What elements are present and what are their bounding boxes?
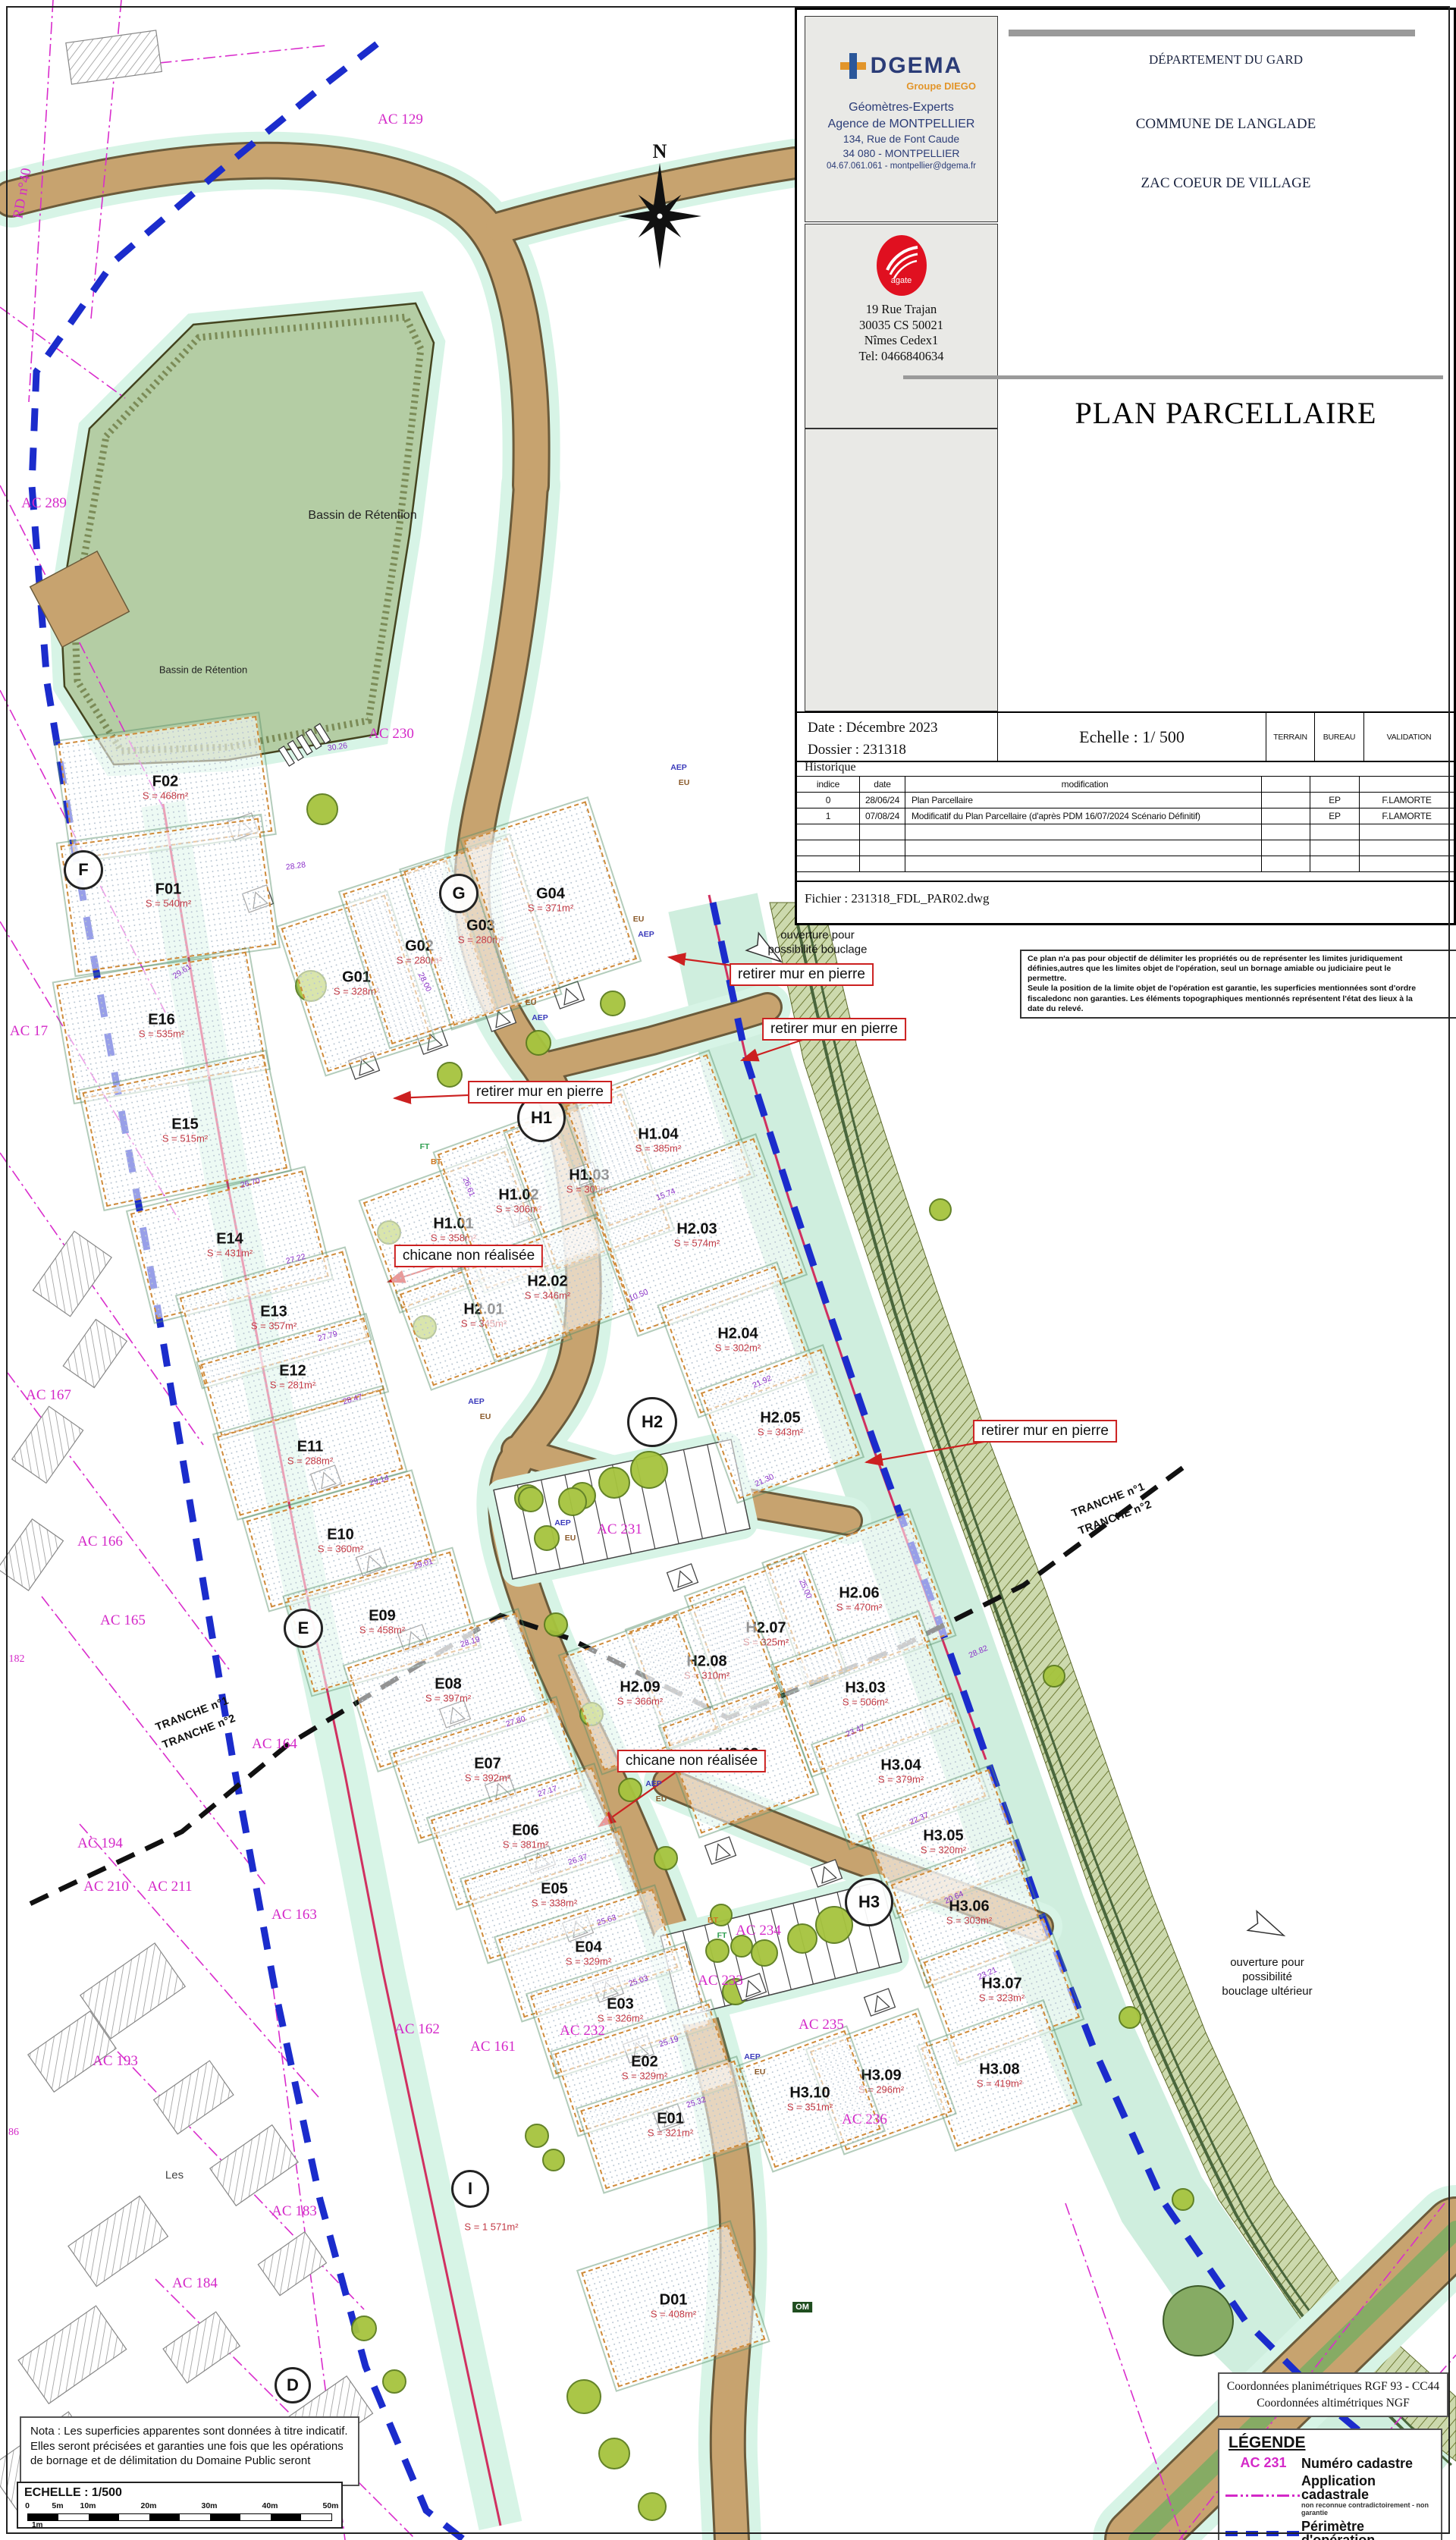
lot-E09: E09S = 458m² [359, 1608, 405, 1636]
header-modification: modification [905, 777, 1262, 792]
lot-F01: F01S = 540m² [146, 881, 191, 909]
tranche-label: TRANCHE n°1TRANCHE n°2 [1069, 1478, 1155, 1541]
lot-id: E09 [359, 1608, 405, 1625]
echelle-value: Echelle : 1/ 500 [998, 713, 1266, 761]
header-terrain-blank [1262, 777, 1310, 792]
historique-cell: F.LAMORTE [1360, 793, 1454, 808]
title-separator [903, 375, 1443, 379]
dimension-label: 30.26 [327, 741, 348, 753]
lot-G04: G04S = 371m² [528, 886, 573, 914]
utility-label: AEP [645, 1779, 662, 1788]
utility-label: EU [755, 2067, 766, 2077]
lot-H3.05: H3.05S = 320m² [921, 1828, 966, 1856]
historique-cell: Modificatif du Plan Parcellaire (d'après… [905, 808, 1262, 824]
lot-id: H3.08 [977, 2061, 1022, 2078]
lot-E04: E04S = 329m² [566, 1939, 611, 1967]
dgema-line: Géomètres-Experts [805, 99, 997, 116]
map-label: OM [792, 2302, 812, 2312]
annotation-callout: retirer mur en pierre [973, 1420, 1117, 1443]
dgema-logo-box: DGEMA Groupe DIEGO Géomètres-Experts Age… [805, 16, 998, 222]
lot-area: S = 397m² [425, 1693, 471, 1704]
lot-area: S = 506m² [843, 1697, 888, 1708]
scale-tick: 10m [80, 2501, 96, 2510]
lot-area: S = 379m² [878, 1774, 924, 1785]
scale-tick: 50m [322, 2501, 338, 2510]
historique-cell: 28/06/24 [860, 793, 905, 808]
historique-cell: EP [1310, 808, 1360, 824]
lot-area: S = 381m² [503, 1839, 548, 1851]
cadastre-label: AC 236 [842, 2111, 887, 2128]
lot-id: D01 [651, 2292, 696, 2309]
cadastre-label: AC 211 [148, 1879, 193, 1895]
lot-area: S = 468m² [143, 790, 188, 802]
lot-area: S = 385m² [635, 1143, 681, 1154]
utility-label: BT [431, 1157, 441, 1166]
col-terrain: TERRAIN [1266, 713, 1315, 761]
historique-cell: 1 [797, 808, 860, 824]
lot-area: S = 323m² [979, 1992, 1025, 2004]
node-G: G [439, 874, 479, 913]
date-row: Date : Décembre 2023 Dossier : 231318 Ec… [797, 711, 1454, 762]
utility-label: EU [526, 998, 537, 1007]
utility-label: AEP [638, 930, 654, 939]
node-H2: H2 [627, 1397, 677, 1447]
legend-cadastre-sample: AC 231 [1225, 2455, 1301, 2471]
lot-H3.03: H3.03S = 506m² [843, 1680, 888, 1708]
map-label: Bassin de Rétention [159, 664, 247, 676]
agate-logo-icon: agate [877, 235, 927, 296]
lot-H3.04: H3.04S = 379m² [878, 1757, 924, 1785]
legend-application-line-icon [1225, 2494, 1301, 2497]
historique-cell: F.LAMORTE [1360, 808, 1454, 824]
lot-E12: E12S = 281m² [270, 1363, 315, 1391]
lot-id: H2.02 [525, 1273, 570, 1290]
lot-id: E02 [622, 2054, 667, 2071]
lot-area: S = 351m² [787, 2102, 833, 2113]
lot-E05: E05S = 338m² [532, 1881, 577, 1909]
lot-id: E04 [566, 1939, 611, 1956]
lot-id: E07 [465, 1756, 510, 1772]
lot-area: S = 281m² [270, 1380, 315, 1391]
map-label: S = 1 571m² [464, 2221, 518, 2233]
cadastre-label: AC 230 [369, 726, 414, 743]
lot-E01: E01S = 321m² [648, 2111, 693, 2139]
lot-area: S = 302m² [715, 1342, 761, 1354]
lot-id: F01 [146, 881, 191, 898]
lot-area: S = 431m² [207, 1248, 253, 1259]
historique-row [797, 840, 1454, 856]
lot-E02: E02S = 329m² [622, 2054, 667, 2082]
col-validation: VALIDATION [1364, 713, 1454, 761]
title-block: DGEMA Groupe DIEGO Géomètres-Experts Age… [795, 8, 1456, 925]
lot-area: S = 346m² [525, 1290, 570, 1301]
file-name: Fichier : 231318_FDL_PAR02.dwg [797, 881, 1456, 906]
utility-label: AEP [554, 1518, 571, 1527]
commune-title: COMMUNE DE LANGLADE [998, 116, 1454, 133]
historique-cell [1262, 840, 1310, 856]
annotation-callout: retirer mur en pierre [730, 963, 874, 986]
agate-address: 30035 CS 50021 [805, 318, 997, 334]
coords-line1: Coordonnées planimétriques RGF 93 - CC44 [1222, 2378, 1444, 2395]
scale-tick: 0 [25, 2501, 30, 2510]
lot-area: S = 338m² [532, 1898, 577, 1909]
cadastre-label: AC 184 [172, 2275, 218, 2292]
historique-cell [1310, 856, 1360, 871]
cadastre-label: AC 231 [597, 1521, 642, 1538]
lot-id: H2.04 [715, 1326, 761, 1342]
cadastre-label: AC 193 [93, 2053, 138, 2070]
cadastre-label: AC 17 [10, 1023, 48, 1040]
cadastre-label: AC 234 [736, 1923, 781, 1939]
agate-address: 19 Rue Trajan [805, 302, 997, 318]
dimension-label: 28.28 [285, 860, 306, 872]
lot-id: H2.06 [836, 1585, 882, 1602]
historique-row [797, 824, 1454, 840]
cadastre-label: AC 194 [77, 1835, 123, 1852]
historique-cell [1360, 824, 1454, 840]
historique-header: indice date modification [797, 777, 1454, 793]
lot-H2.09: H2.09S = 366m² [617, 1679, 663, 1707]
lot-id: H2.09 [617, 1679, 663, 1696]
legend-box: LÉGENDE AC 231 Numéro cadastre Applicati… [1218, 2429, 1442, 2540]
historique-cell [905, 856, 1262, 871]
lot-id: H3.04 [878, 1757, 924, 1774]
dimension-label: 28.82 [968, 1644, 990, 1660]
utility-label: FT [420, 1142, 430, 1151]
lot-H2.03: H2.03S = 574m² [674, 1221, 720, 1249]
historique-cell [905, 840, 1262, 856]
legend-perimeter-line-icon [1225, 2531, 1301, 2536]
scale-subtick: 1m [32, 2521, 42, 2529]
lot-area: S = 303m² [946, 1915, 992, 1926]
lot-E03: E03S = 326m² [598, 1996, 643, 2024]
lot-area: S = 535m² [139, 1028, 184, 1040]
lot-id: E14 [207, 1231, 253, 1248]
cadastre-label: AC 161 [470, 2039, 516, 2055]
historique-cell [797, 824, 860, 840]
scale-tick: 30m [201, 2501, 217, 2510]
agate-address: Nîmes Cedex1 [805, 333, 997, 349]
lot-area: S = 343m² [758, 1427, 803, 1438]
legend-application-label: Application cadastrale [1301, 2474, 1435, 2501]
lot-E08: E08S = 397m² [425, 1676, 471, 1704]
header-accent-bar [1009, 30, 1415, 36]
historique-cell [1360, 840, 1454, 856]
lot-E15: E15S = 515m² [162, 1116, 208, 1144]
map-label: 182 [9, 1653, 25, 1666]
cadastre-label: AC 164 [252, 1736, 297, 1753]
lot-area: S = 408m² [651, 2309, 696, 2320]
dgema-line: Agence de MONTPELLIER [805, 116, 997, 133]
legend-application-sub: non reconnue contradictoirement - non ga… [1301, 2501, 1435, 2516]
empty-logo-box [805, 429, 998, 711]
map-label: ouverture pour possibilité bouclage [768, 928, 868, 957]
annotation-callout: retirer mur en pierre [468, 1081, 612, 1104]
document-title: PLAN PARCELLAIRE [998, 395, 1454, 431]
lot-id: E08 [425, 1676, 471, 1693]
historique-row: 107/08/24Modificatif du Plan Parcellaire… [797, 808, 1454, 824]
lot-id: E13 [251, 1304, 297, 1320]
department-title: DÉPARTEMENT DU GARD [998, 52, 1454, 68]
lot-area: S = 321m² [648, 2127, 693, 2139]
lot-E14: E14S = 431m² [207, 1231, 253, 1259]
annotation-callout: retirer mur en pierre [762, 1018, 906, 1041]
agate-phone: Tel: 0466840634 [805, 349, 997, 365]
dgema-contact: 04.67.061.061 - montpellier@dgema.fr [805, 161, 997, 173]
lot-area: S = 329m² [566, 1956, 611, 1967]
lot-E07: E07S = 392m² [465, 1756, 510, 1784]
agate-logo-box: agate 19 Rue Trajan 30035 CS 50021 Nîmes… [805, 224, 998, 429]
historique-cell [905, 824, 1262, 840]
historique-cell [797, 856, 860, 871]
utility-label: BT [708, 1916, 718, 1925]
lot-H2.06: H2.06S = 470m² [836, 1585, 882, 1613]
lot-area: S = 574m² [674, 1238, 720, 1249]
lot-area: S = 357m² [251, 1320, 297, 1332]
lot-E10: E10S = 360m² [318, 1527, 363, 1555]
map-label: Bassin de Rétention [308, 509, 416, 523]
lot-area: S = 540m² [146, 898, 191, 909]
annotation-callout: chicane non réalisée [617, 1750, 766, 1772]
lot-id: H3.05 [921, 1828, 966, 1845]
lot-H3.10: H3.10S = 351m² [787, 2085, 833, 2113]
node-H3: H3 [845, 1878, 893, 1926]
historique-rows: 028/06/24Plan ParcellaireEPF.LAMORTE107/… [797, 793, 1454, 872]
scale-tick: 40m [262, 2501, 278, 2510]
lot-F02: F02S = 468m² [143, 774, 188, 802]
lot-E13: E13S = 357m² [251, 1304, 297, 1332]
cadastre-label: AC 165 [100, 1612, 146, 1629]
cadastre-label: AC 163 [271, 1907, 317, 1923]
lot-H3.07: H3.07S = 323m² [979, 1976, 1025, 2004]
map-label: 86 [8, 2127, 19, 2139]
header-validation-blank [1360, 777, 1454, 792]
scale-tick: 20m [140, 2501, 156, 2510]
coords-line2: Coordonnées altimétriques NGF [1222, 2395, 1444, 2412]
annotation-callout: chicane non réalisée [394, 1245, 543, 1267]
legend-title: LÉGENDE [1228, 2434, 1441, 2452]
historique-row [797, 856, 1454, 872]
lot-id: H2.03 [674, 1221, 720, 1238]
cadastre-label: AC 233 [698, 1973, 743, 1989]
date-value: Date : Décembre 2023 [808, 717, 997, 739]
lot-H2.04: H2.04S = 302m² [715, 1326, 761, 1354]
map-label: RD n°40 [10, 167, 35, 220]
lot-id: E03 [598, 1996, 643, 2013]
header-indice: indice [797, 777, 860, 792]
scale-bar [27, 2513, 332, 2521]
utility-label: EU [633, 915, 645, 924]
lot-area: S = 366m² [617, 1696, 663, 1707]
node-E: E [284, 1609, 323, 1648]
zac-title: ZAC COEUR DE VILLAGE [998, 175, 1454, 192]
node-D: D [275, 2367, 311, 2403]
utility-label: AEP [532, 1013, 548, 1022]
map-label: Les [165, 2169, 184, 2182]
historique-title: Historique [797, 759, 1454, 777]
lot-E11: E11S = 288m² [287, 1439, 333, 1467]
lot-area: S = 470m² [836, 1602, 882, 1613]
lot-area: S = 288m² [287, 1455, 333, 1467]
lot-H3.08: H3.08S = 419m² [977, 2061, 1022, 2089]
lot-id: F02 [143, 774, 188, 790]
cadastre-label: AC 129 [378, 111, 423, 128]
map-label: N [653, 140, 667, 163]
historique-cell [1262, 856, 1310, 871]
lot-id: E11 [287, 1439, 333, 1455]
scale-label: ECHELLE : 1/500 [24, 2486, 341, 2500]
lot-id: H3.10 [787, 2085, 833, 2102]
historique-table: Historique indice date modification 028/… [797, 759, 1454, 872]
lot-id: H2.05 [758, 1410, 803, 1427]
dgema-cross-icon [840, 53, 866, 79]
utility-label: AEP [468, 1397, 485, 1406]
lot-area: S = 360m² [318, 1543, 363, 1555]
agate-logo-text: agate [891, 276, 912, 285]
historique-cell [860, 840, 905, 856]
historique-cell [1360, 856, 1454, 871]
cadastre-label: AC 167 [26, 1387, 71, 1404]
historique-cell: Plan Parcellaire [905, 793, 1262, 808]
historique-cell [860, 856, 905, 871]
historique-cell: EP [1310, 793, 1360, 808]
utility-label: AEP [744, 2052, 761, 2061]
node-I: I [451, 2170, 489, 2208]
utility-label: EU [656, 1794, 667, 1804]
utility-label: AEP [670, 763, 687, 772]
lot-id: G04 [528, 886, 573, 903]
dgema-name: DGEMA [871, 53, 963, 79]
lot-id: H1.04 [635, 1126, 681, 1143]
plan-sheet: F02S = 468m²F01S = 540m²E16S = 535m²G01S… [0, 0, 1456, 2540]
historique-cell: 07/08/24 [860, 808, 905, 824]
lot-id: E10 [318, 1527, 363, 1543]
cadastre-label: AC 183 [271, 2203, 317, 2220]
lot-id: E15 [162, 1116, 208, 1133]
cadastre-label: AC 289 [21, 495, 67, 512]
cadastre-label: AC 235 [799, 2017, 844, 2033]
cadastre-label: AC 162 [394, 2021, 440, 2038]
utility-label: EU [565, 1534, 576, 1543]
scale-tick: 5m [52, 2501, 63, 2510]
legend-perimeter-label: Périmètre d'opération [1301, 2520, 1435, 2540]
dgema-group: Groupe DIEGO [805, 80, 976, 92]
header-date: date [860, 777, 905, 792]
lot-id: E16 [139, 1012, 184, 1028]
lot-D01: D01S = 408m² [651, 2292, 696, 2320]
dgema-line: 134, Rue de Font Caude [805, 132, 997, 146]
lot-H2.05: H2.05S = 343m² [758, 1410, 803, 1438]
lot-area: S = 392m² [465, 1772, 510, 1784]
col-bureau: BUREAU [1315, 713, 1364, 761]
lot-id: E06 [503, 1823, 548, 1839]
lot-H2.02: H2.02S = 346m² [525, 1273, 570, 1301]
utility-label: EU [679, 778, 690, 787]
legend-cadastre-label: Numéro cadastre [1301, 2457, 1413, 2470]
historique-cell [860, 824, 905, 840]
lot-E16: E16S = 535m² [139, 1012, 184, 1040]
historique-cell [1310, 824, 1360, 840]
coordinates-box: Coordonnées planimétriques RGF 93 - CC44… [1218, 2372, 1448, 2417]
historique-cell [1262, 824, 1310, 840]
historique-row: 028/06/24Plan ParcellaireEPF.LAMORTE [797, 793, 1454, 808]
historique-cell [797, 840, 860, 856]
disclaimer-box: Ce plan n'a pas pour objectif de délimit… [1020, 950, 1456, 1019]
tranche-label: TRANCHE n°1TRANCHE n°2 [153, 1692, 239, 1755]
cadastre-label: AC 210 [83, 1879, 129, 1895]
lot-E06: E06S = 381m² [503, 1823, 548, 1851]
historique-cell [1262, 793, 1310, 808]
lot-id: E01 [648, 2111, 693, 2127]
map-label: ouverture pour possibilité bouclage ulté… [1222, 1956, 1312, 1998]
lot-area: S = 515m² [162, 1133, 208, 1144]
lot-area: S = 371m² [528, 903, 573, 914]
lot-area: S = 320m² [921, 1845, 966, 1856]
scale-box: ECHELLE : 1/500 1m 05m10m20m30m40m50m [17, 2482, 343, 2529]
lot-area: S = 419m² [977, 2078, 1022, 2089]
historique-cell [1262, 808, 1310, 824]
node-F: F [64, 850, 103, 890]
dossier-value: Dossier : 231318 [808, 739, 997, 761]
historique-cell: 0 [797, 793, 860, 808]
utility-label: EU [480, 1412, 491, 1421]
header-bureau-blank [1310, 777, 1360, 792]
dgema-line: 34 080 - MONTPELLIER [805, 146, 997, 161]
cadastre-label: AC 232 [560, 2023, 605, 2039]
historique-cell [1310, 840, 1360, 856]
nota-box: Nota : Les superficies apparentes sont d… [20, 2416, 359, 2486]
lot-id: E05 [532, 1881, 577, 1898]
cadastre-label: AC 166 [77, 1534, 123, 1550]
lot-area: S = 458m² [359, 1625, 405, 1636]
lot-id: E12 [270, 1363, 315, 1380]
utility-label: FT [717, 1931, 727, 1940]
lot-id: H3.03 [843, 1680, 888, 1697]
lot-H1.04: H1.04S = 385m² [635, 1126, 681, 1154]
